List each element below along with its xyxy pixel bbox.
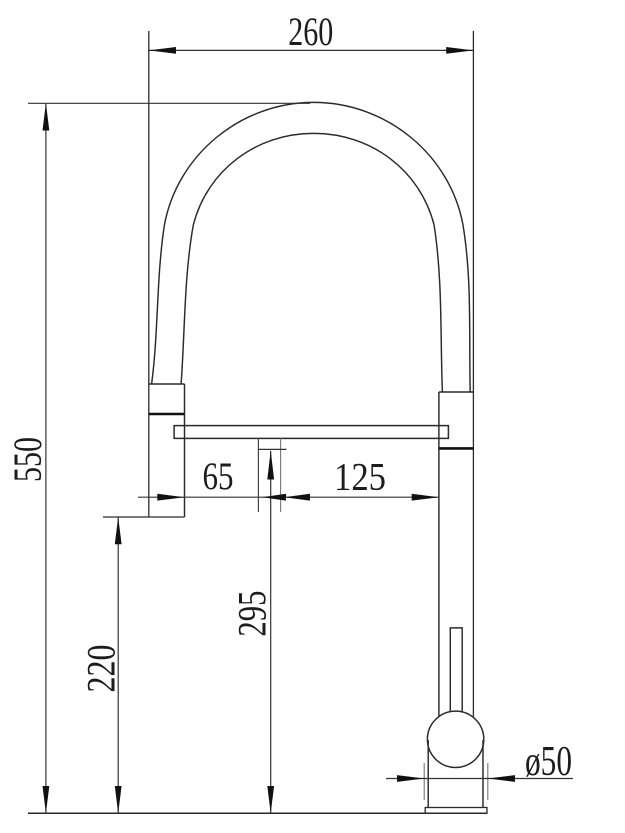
svg-text:295: 295 bbox=[230, 591, 275, 637]
svg-text:125: 125 bbox=[334, 456, 386, 499]
svg-text:550: 550 bbox=[5, 437, 50, 482]
svg-text:220: 220 bbox=[79, 645, 124, 693]
svg-text:65: 65 bbox=[203, 455, 234, 498]
svg-text:260: 260 bbox=[288, 9, 333, 54]
svg-text:ø50: ø50 bbox=[525, 739, 572, 785]
